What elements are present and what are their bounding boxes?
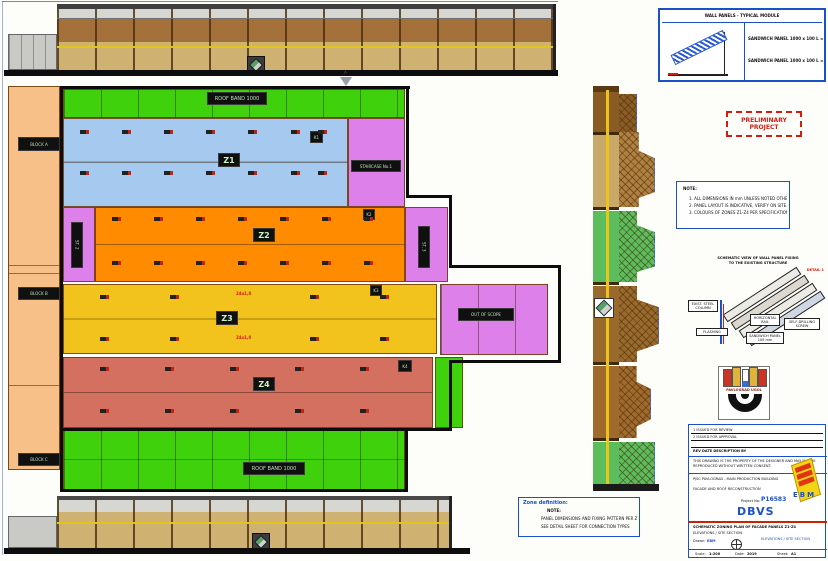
block-a-tag: BLOCK A: [18, 137, 60, 151]
logo-bars: [723, 369, 767, 387]
section-marker-icon: [340, 77, 352, 86]
spec-box: WALL PANELS - TYPICAL MODULE SANDWICH PA…: [658, 8, 826, 82]
outline-step3: [449, 360, 561, 363]
panel-clip-marker: [170, 295, 179, 299]
ramp-sketch: [666, 26, 744, 78]
stamp-line-2: PROJECT: [750, 124, 779, 131]
outline-right-bottomband: [405, 430, 408, 492]
brand-logo: PAVLOGRAD UGOL: [718, 366, 770, 420]
stamp-line-1: PRELIMINARY: [741, 117, 787, 124]
scale-value: 1:200: [709, 552, 720, 557]
spec-header: WALL PANELS - TYPICAL MODULE: [660, 13, 824, 18]
ebm-letters: EBM: [793, 491, 816, 499]
rev-line-3: [691, 447, 823, 448]
panel-clip-marker: [100, 295, 109, 299]
panel-clip-marker: [80, 130, 89, 134]
k4-tag: K4: [398, 360, 412, 372]
panel-clip-marker: [380, 337, 389, 341]
outline-step2: [449, 265, 561, 268]
outline-right-lower: [449, 360, 452, 430]
fixing-detail: SCHEMATIC VIEW OF WALL PANEL FIXING TO T…: [688, 256, 828, 356]
spec-divider: [662, 22, 822, 23]
panel-clip-marker: [248, 171, 257, 175]
st2-tag: ST. 2: [71, 222, 83, 268]
drawing-sheet: BLOCK A BLOCK B BLOCK C ROOF BAND 1000 S…: [0, 0, 828, 561]
annex-block-top: [8, 34, 57, 70]
panel-clip-marker: [360, 409, 369, 413]
code-value: DBVS: [737, 505, 775, 518]
wall-end-cap: [553, 4, 556, 72]
panel-clip-marker: [196, 217, 205, 221]
outline-right-upper: [406, 86, 409, 198]
panel-clip-marker: [318, 130, 327, 134]
dim-note-1: 24x1,0: [236, 291, 251, 296]
panel-clip-marker: [295, 409, 304, 413]
panel-clip-marker: [318, 171, 327, 175]
detail-callout-4: SELF-DRILLING SCREW: [784, 318, 820, 330]
detail-callout-1: EXIST. STEEL COLUMN: [688, 300, 718, 312]
k3-label: K3: [373, 288, 378, 293]
z1-tag: Z1: [218, 153, 240, 167]
st3-label: ST. 3: [422, 242, 427, 252]
panel-clip-marker: [154, 217, 163, 221]
z4-tag: Z4: [253, 377, 275, 391]
outline-bottom: [60, 489, 408, 492]
logo-brand-text: PAVLOGRAD UGOL: [719, 388, 769, 393]
panel-clip-marker: [280, 217, 289, 221]
elevation2-yellow-string: [57, 522, 452, 524]
spec-line-1: SANDWICH PANEL 1000 x 100 L = 12.0 m: [748, 36, 824, 41]
note-title: NOTE:: [683, 186, 697, 191]
detail-title-1: SCHEMATIC VIEW OF WALL PANEL FIXING: [688, 256, 828, 261]
z1-label: Z1: [223, 156, 234, 165]
drawn-label: Drawn:: [693, 539, 706, 544]
wall-end-cap-south: [449, 496, 452, 548]
z3-tag: Z3: [216, 311, 238, 325]
panel-clip-marker: [238, 261, 247, 265]
panel-clip-marker: [170, 337, 179, 341]
sheet-value: A1: [791, 552, 796, 557]
ground-line-bottom: [4, 548, 470, 554]
title-block: 1 ISSUED FOR REVIEW 2 ISSUED FOR APPROVA…: [688, 424, 826, 558]
zone-note-box: Zone definition: NOTE: PANEL DIMENSIONS …: [518, 497, 640, 537]
desc-line-2: ELEVATIONS / SITE SECTION: [693, 531, 823, 536]
south-elevation: [57, 496, 452, 548]
roof-top-label: ROOF BAND 1000: [215, 96, 260, 102]
date-label: Date:: [735, 552, 745, 557]
right-info: ELEVATIONS / SITE SECTION: [761, 537, 821, 542]
logo-bar-red-2: [758, 369, 767, 387]
panel-clip-marker: [165, 409, 174, 413]
logo-bar-gold-1: [732, 367, 741, 387]
z2-label: Z2: [258, 231, 269, 240]
panel-clip-marker: [291, 171, 300, 175]
scale-label: Scale:: [695, 552, 706, 557]
date-value: 2019: [747, 552, 757, 557]
detail-callout-2: HORIZONTAL RAIL: [750, 314, 780, 326]
dim-note-2: 24x1,0: [236, 335, 251, 340]
panel-clip-marker: [295, 367, 304, 371]
detail-callout-3: SANDWICH PANEL 100 mm: [746, 332, 784, 344]
panel-clip-marker: [206, 171, 215, 175]
detail-title-2: TO THE EXISTING STRUCTURE: [688, 261, 828, 266]
detail-ref: DETAIL 1: [807, 268, 824, 273]
tb-rule-1: [689, 456, 827, 457]
desc-line-1: SCHEMATIC ZONING PLAN OF FACADE PANELS Z…: [693, 525, 823, 530]
hatch-6: [619, 442, 655, 484]
elevation-roof-band: [57, 9, 556, 19]
section-marker-letter: A: [344, 70, 347, 75]
panel-clip-marker: [122, 130, 131, 134]
panel-clip-marker: [112, 261, 121, 265]
detail-callout-4-label: SELF-DRILLING SCREW: [789, 320, 815, 328]
roof-bottom-label: ROOF BAND 1000: [252, 466, 297, 472]
project-no-label: Project No:: [741, 499, 760, 504]
door-diamond-icon-south: [254, 534, 268, 548]
hatch-2: [619, 132, 655, 207]
k4-label: K4: [402, 364, 407, 369]
z4-label: Z4: [258, 380, 269, 389]
outline-right-far: [558, 265, 561, 362]
note-line-1: 1. ALL DIMENSIONS IN mm UNLESS NOTED OTH…: [689, 196, 787, 201]
spec-inner-divider: [744, 23, 745, 81]
panel-clip-marker: [310, 295, 319, 299]
annex-label: OUT OF SCOPE: [471, 312, 501, 317]
panel-clip-marker: [322, 217, 331, 221]
client-line: PJSC PAVLOGRAD - MAIN PRODUCTION BUILDIN…: [693, 477, 785, 482]
panel-clip-marker: [360, 367, 369, 371]
detail-callout-1-label: EXIST. STEEL COLUMN: [692, 302, 715, 310]
tb-rule-3: [689, 549, 827, 550]
detail-callout-2-label: HORIZONTAL RAIL: [754, 316, 777, 324]
sheet-label: Sheet:: [777, 552, 788, 557]
panel-clip-marker: [80, 171, 89, 175]
block-c-tag: BLOCK C: [18, 453, 60, 466]
project-no-value: P16583: [761, 496, 786, 503]
panel-clip-marker: [230, 409, 239, 413]
terrain-section: [593, 86, 663, 492]
detail-post-red: [723, 304, 724, 344]
logo-bar-gold-2: [749, 367, 758, 387]
panel-clip-marker: [322, 261, 331, 265]
panel-clip-marker: [364, 261, 373, 265]
ebm-logo: EBM: [793, 461, 819, 505]
block-c-label: BLOCK C: [30, 457, 47, 462]
viewport-frame-left: [2, 1, 3, 555]
panel-clip-marker: [164, 130, 173, 134]
outline-step1: [406, 195, 452, 198]
staircase1-tag: STAIRCASE No.1: [351, 160, 401, 172]
panel-clip-marker: [112, 217, 121, 221]
ramp-red-mark: [668, 73, 678, 75]
panel-clip-marker: [122, 171, 131, 175]
panel-clip-marker: [100, 337, 109, 341]
panel-clip-marker: [165, 367, 174, 371]
rev-row-2: 2 ISSUED FOR APPROVAL: [693, 435, 821, 440]
elevation-upper-wall: [57, 19, 556, 42]
panel-clip-marker: [364, 217, 373, 221]
detail-callout-5-label: FLASHING: [703, 330, 721, 334]
st2-label: ST. 2: [75, 240, 80, 250]
block-b-label: BLOCK B: [30, 291, 47, 296]
panel-clip-marker: [280, 261, 289, 265]
tb-red-rule: [689, 521, 827, 523]
panel-clip-marker: [100, 409, 109, 413]
panel-clip-marker: [291, 130, 300, 134]
terrain-diamond-symbol: [594, 298, 614, 318]
st3-tag: ST. 3: [418, 226, 430, 268]
zone-z2: [95, 207, 405, 282]
annex-block-bottom: [8, 516, 57, 548]
zone-note-line-1: PANEL DIMENSIONS AND FIXING PATTERN PER …: [541, 516, 637, 521]
rev-line-2: [691, 440, 823, 441]
drawn-value: EBM: [707, 539, 716, 544]
outline-right-mid: [449, 195, 452, 268]
block-b-tag: BLOCK B: [18, 287, 60, 300]
address-line: FACADE AND ROOF RECONSTRUCTION: [693, 487, 785, 492]
roof-bottom-tag: ROOF BAND 1000: [243, 462, 305, 475]
terrain-diamond-icon: [596, 300, 613, 317]
staircase1-label: STAIRCASE No.1: [360, 164, 392, 169]
panel-clip-marker: [230, 367, 239, 371]
ramp-bar: [671, 30, 728, 65]
detail-post: [720, 300, 722, 344]
z2-tag: Z2: [253, 228, 275, 242]
note-line-2: 2. PANEL LAYOUT IS INDICATIVE, VERIFY ON…: [689, 203, 787, 208]
annex-tag: OUT OF SCOPE: [458, 308, 514, 321]
hatch-4: [619, 286, 659, 362]
detail-callout-3-label: SANDWICH PANEL 100 mm: [749, 334, 781, 342]
logo-bar-center: [742, 369, 749, 387]
panel-clip-marker: [196, 261, 205, 265]
elevation-yellow-string: [57, 46, 556, 48]
hatch-5: [619, 366, 651, 438]
zone-note-note: NOTE:: [547, 508, 561, 513]
ground-line-top: [4, 70, 558, 76]
rev-header: REV DATE DESCRIPTION BY: [693, 449, 821, 454]
terrain-yellow-line: [606, 90, 609, 484]
hatch-1: [619, 94, 637, 132]
panel-clip-marker: [206, 130, 215, 134]
zone-z4: [63, 357, 433, 428]
panel-clip-marker: [380, 295, 389, 299]
rev-2-text: ISSUED FOR APPROVAL: [696, 435, 737, 439]
preliminary-stamp: PRELIMINARY PROJECT: [726, 111, 802, 137]
panel-clip-marker: [154, 261, 163, 265]
panel-clip-marker: [100, 367, 109, 371]
roof-top-tag: ROOF BAND 1000: [207, 92, 267, 105]
zone-note-title: Zone definition:: [523, 500, 568, 506]
outline-bottom-red: [60, 428, 452, 431]
logo-bar-red-1: [723, 369, 732, 387]
k1-label: K1: [314, 135, 319, 140]
note-box: NOTE: 1. ALL DIMENSIONS IN mm UNLESS NOT…: [676, 181, 790, 229]
detail-callout-5: FLASHING: [696, 328, 728, 336]
block-a-label: BLOCK A: [30, 142, 47, 147]
north-elevation: [57, 4, 556, 72]
viewport-frame-top: [2, 1, 558, 2]
panel-clip-marker: [238, 217, 247, 221]
rev-1-no: 1: [693, 428, 695, 432]
outline-left: [60, 86, 63, 492]
panel-clip-marker: [310, 337, 319, 341]
rev-1-text: ISSUED FOR REVIEW: [696, 428, 732, 432]
zone-note-line-2: SEE DETAIL SHEET FOR CONNECTION TYPES: [541, 524, 637, 529]
rev-row-1: 1 ISSUED FOR REVIEW: [693, 428, 821, 433]
terrain-base: [593, 484, 659, 491]
note-line-3: 3. COLOURS OF ZONES Z1-Z4 PER SPECIFICAT…: [689, 210, 787, 215]
spec-line-2: SANDWICH PANEL 1000 x 100 L = 10.0 m: [748, 58, 824, 63]
hatch-3: [619, 211, 655, 282]
rev-line-1: [691, 433, 823, 434]
panel-clip-marker: [164, 171, 173, 175]
zone-roof-bottom: [63, 430, 405, 490]
rev-2-no: 2: [693, 435, 695, 439]
outline-top: [60, 86, 410, 89]
panel-clip-marker: [248, 130, 257, 134]
z3-label: Z3: [221, 314, 232, 323]
